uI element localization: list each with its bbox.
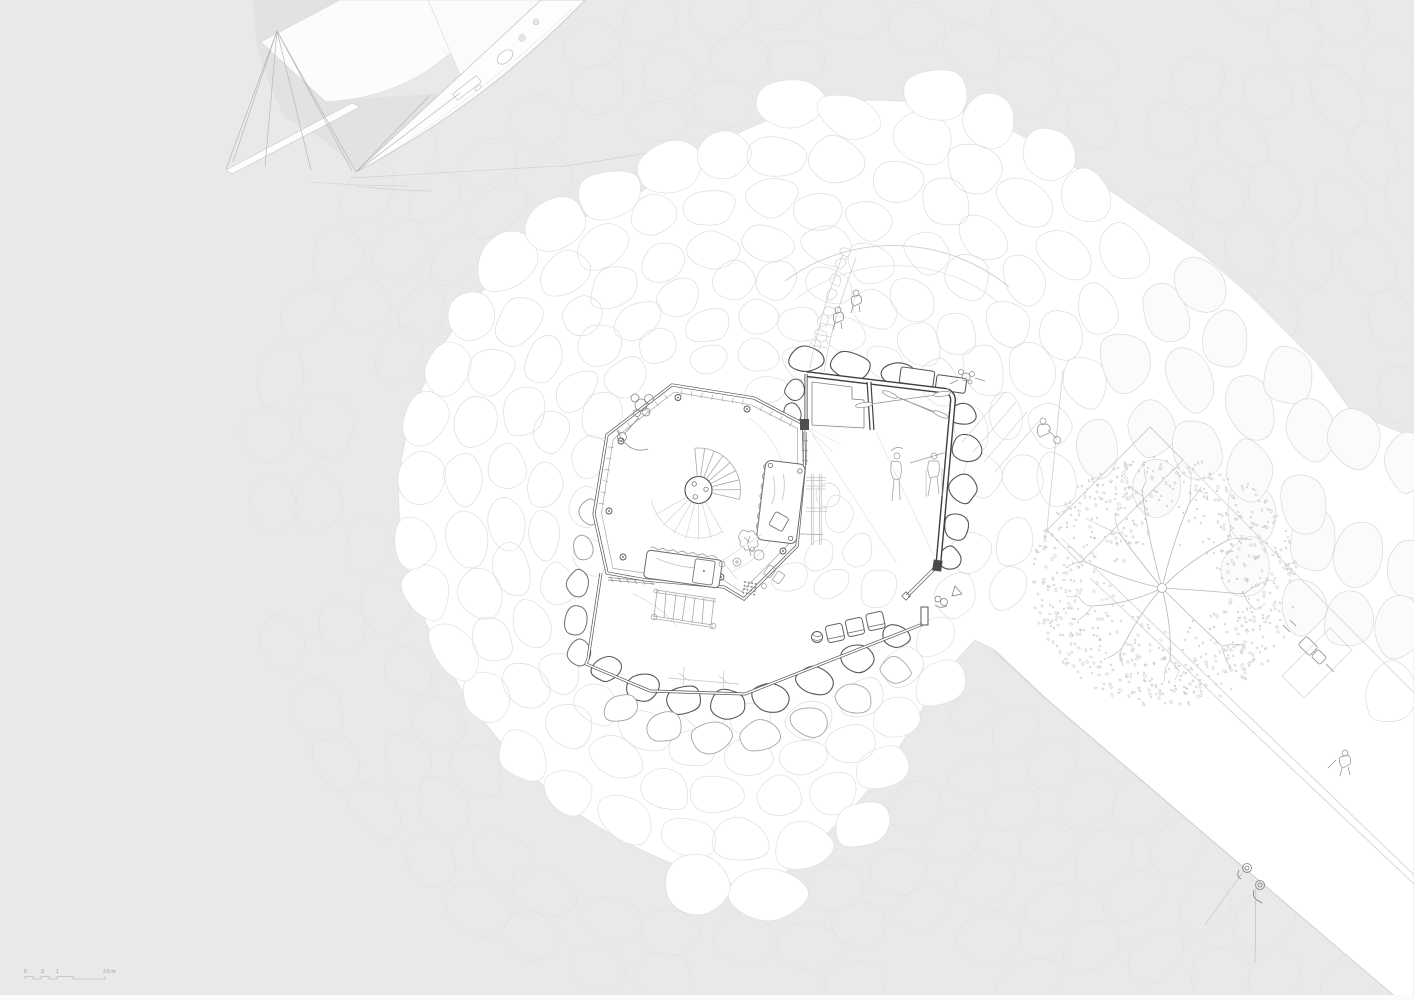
svg-text:.5: .5 bbox=[40, 969, 44, 975]
svg-text:2.5 m: 2.5 m bbox=[103, 969, 116, 975]
svg-text:1: 1 bbox=[56, 969, 59, 975]
svg-text:0: 0 bbox=[24, 969, 27, 975]
